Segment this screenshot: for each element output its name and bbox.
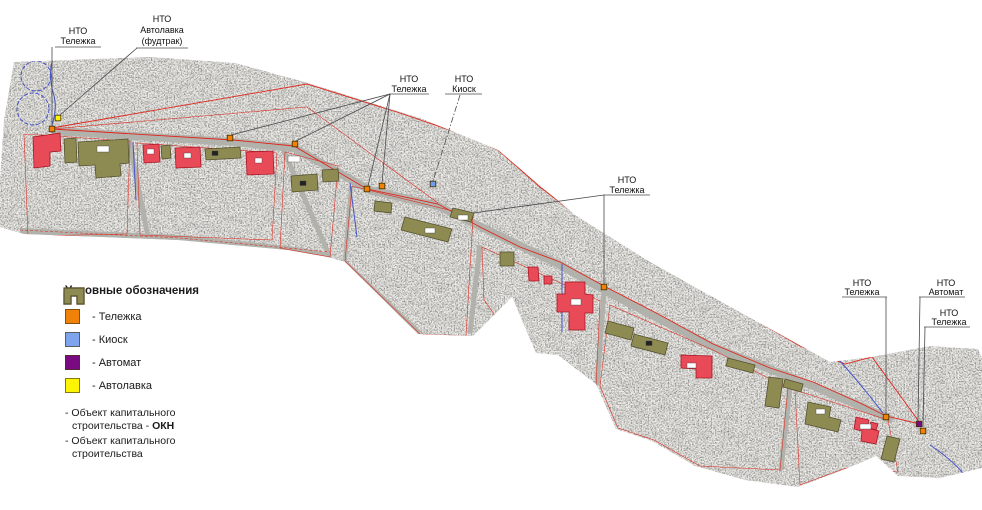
callout-label: Тележка (931, 317, 966, 327)
telezhka-swatch (65, 309, 80, 324)
legend-item-label: - Автолавка (92, 380, 152, 392)
marker-telezhka (920, 428, 926, 434)
callout-label: Автомат (929, 287, 964, 297)
marker-telezhka (883, 414, 889, 420)
avtomat-swatch (65, 355, 80, 370)
legend-item-label: - Киоск (92, 334, 128, 346)
marker-telezhka (49, 126, 55, 132)
building-oks (374, 201, 392, 213)
legend-item-okn: - Объект капитального строительства - ОК… (65, 407, 295, 432)
callout-label: НТО (153, 14, 172, 24)
callout-label: НТО (618, 175, 637, 185)
callout-label: НТО (455, 74, 474, 84)
callout-label: Автолавка (140, 25, 184, 35)
legend-item-kiosk: - Киоск (65, 332, 295, 347)
callout-label: Тележка (844, 287, 879, 297)
legend-title: Условные обозначения (65, 285, 295, 297)
kiosk-swatch (65, 332, 80, 347)
building-okn (528, 267, 539, 281)
callout-label: НТО (400, 74, 419, 84)
legend-item-label: - Тележка (92, 311, 142, 323)
legend-item-telezhka: - Тележка (65, 309, 295, 324)
marker-telezhka (364, 186, 370, 192)
callout-label: Тележка (609, 185, 644, 195)
building-oks (64, 138, 77, 163)
building-oks (500, 252, 514, 266)
legend: Условные обозначения - Тележка - Киоск -… (65, 285, 295, 462)
marker-telezhka (227, 135, 233, 141)
marker-avtolavka (55, 115, 61, 121)
building-oks (205, 147, 241, 160)
callout-label: НТО (69, 26, 88, 36)
callout-label: Киоск (452, 84, 476, 94)
marker-avtomat (916, 421, 922, 427)
callout-label: Тележка (391, 84, 426, 94)
building-oks (161, 145, 171, 159)
building-oks (322, 169, 339, 182)
legend-item-label: - Объект капитального строительства (65, 435, 176, 460)
legend-item-avtomat: - Автомат (65, 355, 295, 370)
oks-building-icon (63, 287, 85, 305)
callout-label: Тележка (60, 36, 95, 46)
marker-telezhka (292, 141, 298, 147)
legend-item-oks: - Объект капитального строительства (65, 435, 295, 460)
marker-telezhka (379, 183, 385, 189)
avtolavka-swatch (65, 378, 80, 393)
marker-kiosk (430, 181, 436, 187)
marker-telezhka (601, 284, 607, 290)
callout-label: (фудтрак) (142, 36, 183, 46)
site-plan-canvas: НТО Тележка НТО Автолавка (фудтрак) НТО … (0, 0, 982, 510)
legend-item-label: - Автомат (92, 357, 141, 369)
legend-item-label: - Объект капитального строительства - ОК… (65, 407, 176, 432)
building-okn (544, 276, 552, 284)
legend-item-avtolavka: - Автолавка (65, 378, 295, 393)
